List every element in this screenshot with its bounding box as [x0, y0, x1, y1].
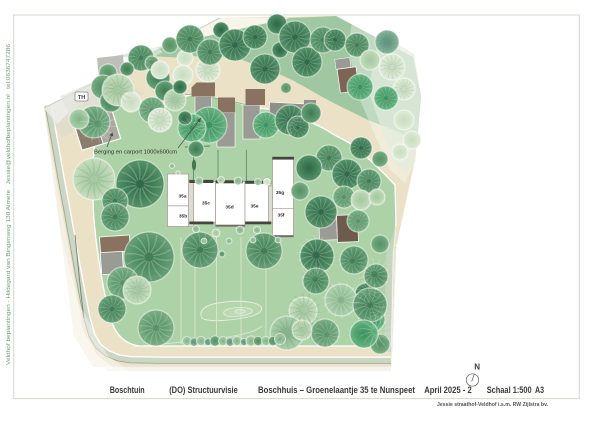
svg-text:(DO) Structuurvisie: (DO) Structuurvisie [169, 385, 238, 395]
svg-text:35c: 35c [202, 201, 210, 207]
svg-text:A3: A3 [535, 385, 544, 395]
svg-text:April 2025 - 2: April 2025 - 2 [424, 385, 472, 395]
svg-text:35b: 35b [179, 214, 187, 220]
svg-text:35d: 35d [225, 205, 233, 211]
svg-text:TH: TH [78, 95, 85, 101]
svg-text:35f: 35f [278, 213, 285, 219]
svg-text:Veldhof beplantingen - Hildega: Veldhof beplantingen - Hildegard van Bin… [6, 44, 12, 365]
svg-text:Boschtuin: Boschtuin [110, 385, 145, 395]
svg-text:35a: 35a [178, 194, 186, 200]
svg-text:35g: 35g [276, 190, 284, 196]
svg-text:Berging en carport 1000x600cm: Berging en carport 1000x600cm [94, 150, 177, 156]
svg-text:N: N [474, 363, 480, 372]
svg-text:Jessie straathof-Veldhof i.s.m: Jessie straathof-Veldhof i.s.m. RW Zijls… [437, 402, 548, 408]
svg-text:Boschhuis – Groenelaantje 35 t: Boschhuis – Groenelaantje 35 te Nunspeet [258, 385, 415, 395]
svg-text:Schaal 1:500: Schaal 1:500 [487, 385, 532, 395]
svg-text:35e: 35e [250, 204, 258, 210]
